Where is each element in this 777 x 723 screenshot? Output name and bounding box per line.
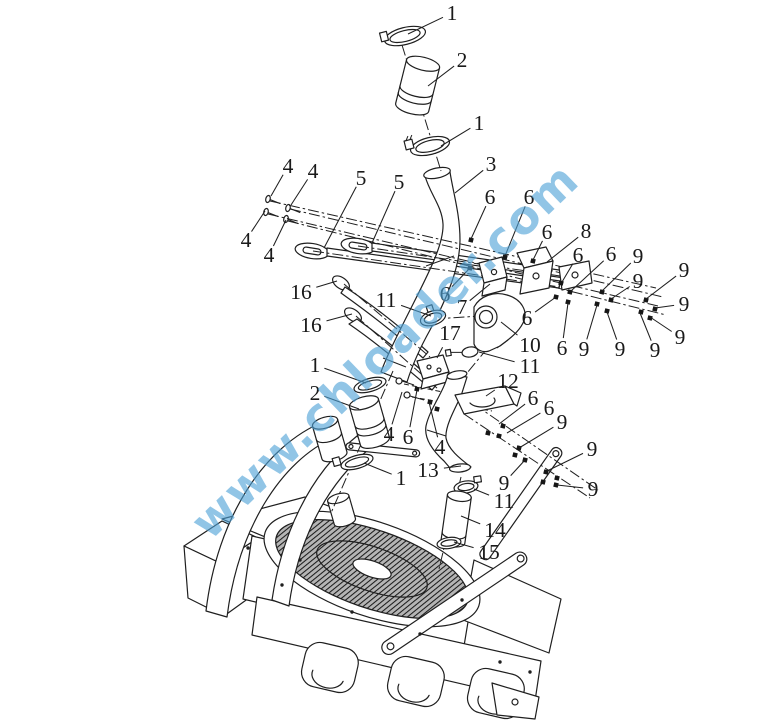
callout-label-1: 1 — [474, 111, 485, 135]
exploded-parts-diagram: 1213445566446866999991616116717106699911… — [0, 0, 777, 723]
callout-label-4: 4 — [241, 228, 252, 252]
callout-label-9: 9 — [557, 410, 568, 434]
leader-line-4 — [392, 392, 402, 424]
callout-label-13: 13 — [417, 458, 439, 482]
callout-label-5: 5 — [394, 170, 405, 194]
bolt-4-mid-b — [404, 392, 424, 400]
callout-label-3: 3 — [486, 152, 497, 176]
leader-line-9 — [557, 485, 583, 488]
leader-line-9 — [650, 317, 672, 332]
callout-label-9: 9 — [633, 244, 644, 268]
callout-label-6: 6 — [485, 185, 496, 209]
fastener-dot — [638, 309, 644, 315]
callout-label-9: 9 — [588, 477, 599, 501]
leader-line-6 — [563, 303, 568, 338]
hose-2-top — [394, 53, 441, 118]
callout-label-16: 16 — [290, 280, 312, 304]
leader-line-9 — [587, 305, 597, 339]
leader-line-6 — [535, 297, 556, 312]
callout-label-4: 4 — [435, 435, 446, 459]
callout-label-1: 1 — [447, 1, 458, 25]
callout-label-9: 9 — [587, 437, 598, 461]
callout-label-6: 6 — [573, 243, 584, 267]
fastener-dot — [599, 289, 605, 295]
callout-label-9: 9 — [679, 292, 690, 316]
fastener-dot — [485, 430, 491, 436]
leader-line-9 — [607, 312, 617, 340]
fastener-dot — [554, 475, 560, 481]
leader-line-9 — [519, 427, 553, 448]
leader-line-11 — [479, 352, 515, 362]
callout-label-9: 9 — [679, 258, 690, 282]
callout-label-9: 9 — [633, 269, 644, 293]
elbow-10 — [474, 294, 525, 352]
callout-label-9: 9 — [675, 325, 686, 349]
leader-line-1 — [364, 463, 392, 474]
callout-label-4: 4 — [283, 154, 294, 178]
callout-label-6: 6 — [544, 396, 555, 420]
leader-line-6 — [410, 390, 417, 427]
leader-line-3 — [455, 170, 483, 193]
leader-line-9 — [611, 287, 630, 300]
callout-label-12: 12 — [497, 369, 519, 393]
callout-label-6: 6 — [522, 306, 533, 330]
wing-bolt-clamp-11-b — [445, 345, 478, 361]
hose-clamp-1-top — [380, 22, 428, 50]
leader-line-6 — [507, 413, 540, 433]
leader-line-11 — [474, 489, 489, 495]
callout-label-16: 16 — [300, 313, 322, 337]
callout-label-9: 9 — [579, 337, 590, 361]
callout-label-9: 9 — [615, 337, 626, 361]
callout-label-4: 4 — [264, 243, 275, 267]
leader-line-9 — [646, 276, 676, 299]
callout-label-4: 4 — [384, 422, 395, 446]
callout-label-9: 9 — [650, 338, 661, 362]
diagram-stage: 1213445566446866999991616116717106699911… — [0, 0, 777, 723]
callout-label-1: 1 — [396, 466, 407, 490]
callout-label-1: 1 — [310, 353, 321, 377]
leader-line-5 — [372, 191, 395, 243]
callout-label-2: 2 — [457, 48, 468, 72]
callout-label-15: 15 — [478, 540, 500, 564]
leader-line-4 — [271, 175, 283, 196]
leader-line-4 — [252, 211, 266, 232]
callout-label-11: 11 — [494, 489, 515, 513]
fastener-dot — [500, 423, 506, 429]
callout-label-6: 6 — [403, 425, 414, 449]
leader-line-4 — [273, 220, 286, 246]
hose-clamp-1-second — [403, 127, 451, 160]
callout-label-6: 6 — [528, 386, 539, 410]
leader-line-6 — [499, 404, 525, 424]
callout-label-4: 4 — [308, 159, 319, 183]
callout-label-6: 6 — [557, 336, 568, 360]
fastener-dot — [512, 452, 518, 458]
callout-label-8: 8 — [581, 219, 592, 243]
leader-line-4 — [291, 179, 308, 205]
leader-line-9 — [602, 263, 631, 291]
callout-label-11: 11 — [520, 354, 541, 378]
fastener-dot — [652, 306, 658, 312]
callout-label-6: 6 — [606, 242, 617, 266]
leader-line-9 — [511, 460, 525, 476]
callout-label-5: 5 — [356, 166, 367, 190]
fastener-dot — [496, 433, 502, 439]
callout-label-14: 14 — [484, 518, 506, 542]
